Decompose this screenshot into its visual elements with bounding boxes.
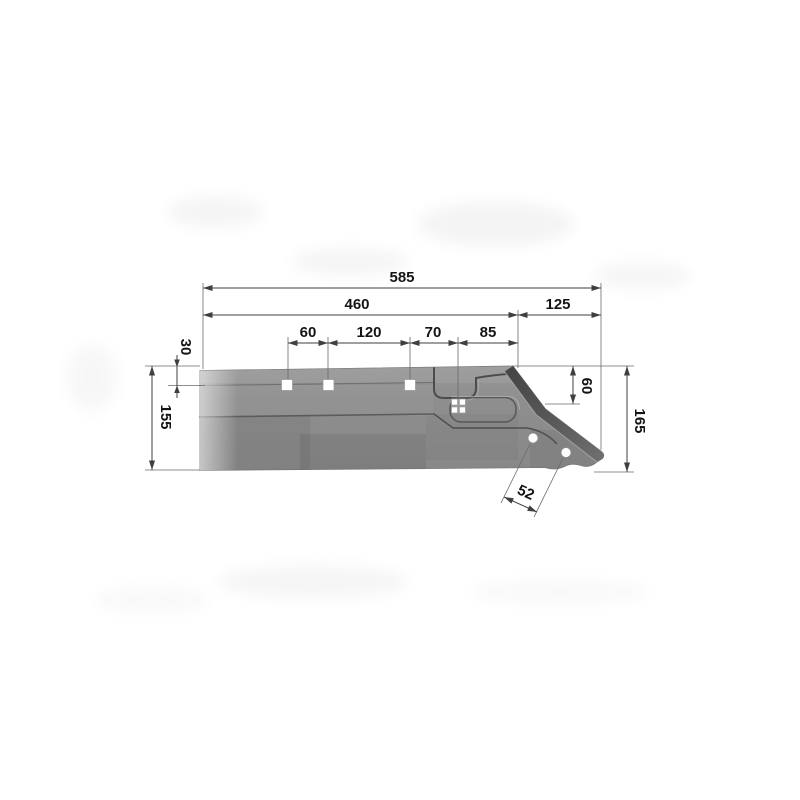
shade-blob [167,196,263,228]
dim-label-120: 120 [356,324,381,341]
dim-hole-gap-4: 85 [458,324,518,343]
dim-hole-gap-3: 70 [410,324,458,343]
dim-rear-length: 460 [203,296,518,315]
dim-tip-length: 125 [518,296,601,315]
shade-blob [94,587,210,613]
shade-blob [218,565,408,599]
dim-label-585: 585 [389,269,414,286]
shade-blob [66,344,118,412]
cross-hole [452,399,466,413]
dim-label-155: 155 [157,404,174,429]
square-hole-3 [405,380,416,391]
dim-top-edge-offset: 30 [174,339,194,398]
dim-label-85: 85 [480,324,497,341]
round-hole-2 [561,448,571,458]
dim-rear-height: 155 [152,366,174,470]
shade-blob [472,580,648,604]
dim-tip-edge-drop: 60 [573,366,595,404]
dim-overall-length: 585 [203,269,601,288]
technical-drawing: 585 460 125 60 120 70 85 [0,0,800,800]
dim-label-60b: 60 [578,378,595,395]
dim-hole-gap-2: 120 [328,324,410,343]
square-hole-1 [282,380,293,391]
round-hole-1 [528,433,538,443]
dim-label-52: 52 [515,481,537,503]
part-plow-point [200,366,610,472]
dim-label-70: 70 [425,324,442,341]
dim-label-125: 125 [545,296,570,313]
shade-blob [417,201,573,247]
shade-blob [595,262,691,290]
dim-label-30: 30 [177,339,194,356]
dim-label-460: 460 [344,296,369,313]
dim-overall-height: 165 [627,366,648,472]
square-hole-2 [323,380,334,391]
dim-label-165: 165 [631,408,648,433]
drawing-page: 585 460 125 60 120 70 85 [0,0,800,800]
dim-hole-gap-1: 60 [288,324,328,343]
dim-label-60a: 60 [300,324,317,341]
left-fade [200,366,238,472]
